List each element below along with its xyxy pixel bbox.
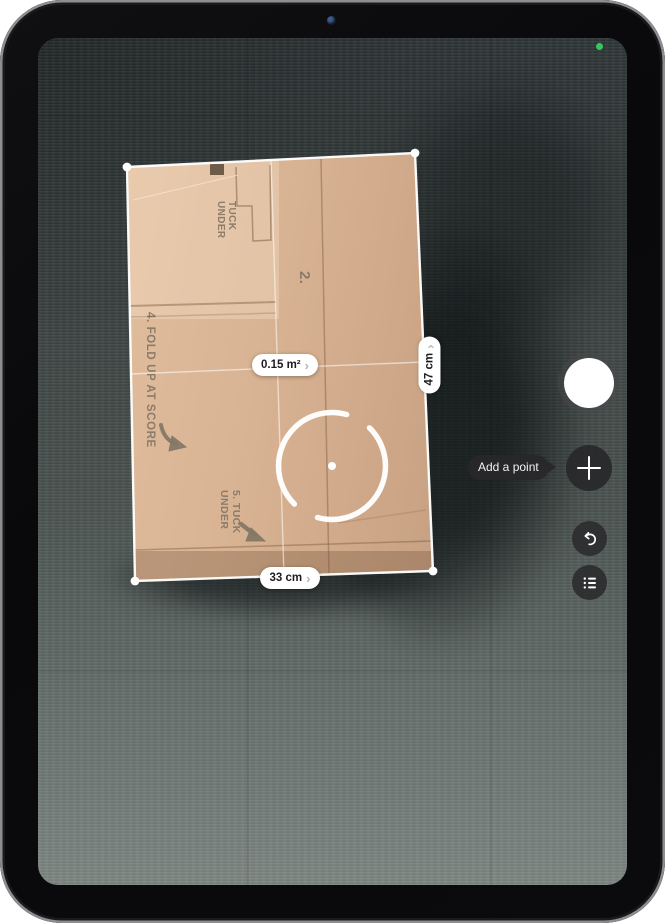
shutter-button[interactable]: [564, 358, 614, 408]
width-value: 33 cm: [270, 572, 303, 584]
camera-viewfinder: TUCK UNDER 2. 4. FOLD UP AT SCORE 5. TUC…: [38, 38, 627, 885]
carpet-seam: [38, 670, 627, 672]
plus-icon: [577, 456, 601, 480]
box-flap: [129, 161, 279, 319]
chevron-right-icon: ›: [305, 359, 309, 372]
carpet-seam: [38, 115, 627, 117]
box-print-tuck-slot: TUCK UNDER: [215, 201, 237, 239]
chevron-right-icon: ›: [423, 345, 436, 349]
screenshot-root: TUCK UNDER 2. 4. FOLD UP AT SCORE 5. TUC…: [0, 0, 665, 923]
measurement-list-button[interactable]: [572, 565, 607, 600]
width-measurement-pill[interactable]: 33 cm ›: [260, 567, 320, 589]
front-camera-icon: [327, 16, 336, 25]
box-print-fold-instruction: 4. FOLD UP AT SCORE: [143, 312, 156, 448]
height-measurement-pill[interactable]: 47 cm ›: [418, 337, 440, 394]
box-print-mark: [210, 164, 224, 175]
area-value: 0.15 m²: [261, 359, 301, 371]
area-measurement-pill[interactable]: 0.15 m² ›: [252, 354, 318, 376]
box-print-tuck-instruction: 5. TUCK UNDER: [218, 490, 242, 534]
add-point-tooltip: Add a point: [468, 455, 549, 480]
camera-active-indicator: [596, 43, 603, 50]
add-point-button[interactable]: [566, 445, 612, 491]
ipad-device-frame: TUCK UNDER 2. 4. FOLD UP AT SCORE 5. TUC…: [0, 0, 665, 923]
list-bullet-icon: [581, 574, 599, 592]
chevron-right-icon: ›: [306, 572, 310, 585]
height-value: 47 cm: [423, 353, 435, 386]
undo-button[interactable]: [572, 521, 607, 556]
undo-arrow-icon: [581, 530, 599, 548]
box-print-panel-number: 2.: [295, 271, 312, 284]
